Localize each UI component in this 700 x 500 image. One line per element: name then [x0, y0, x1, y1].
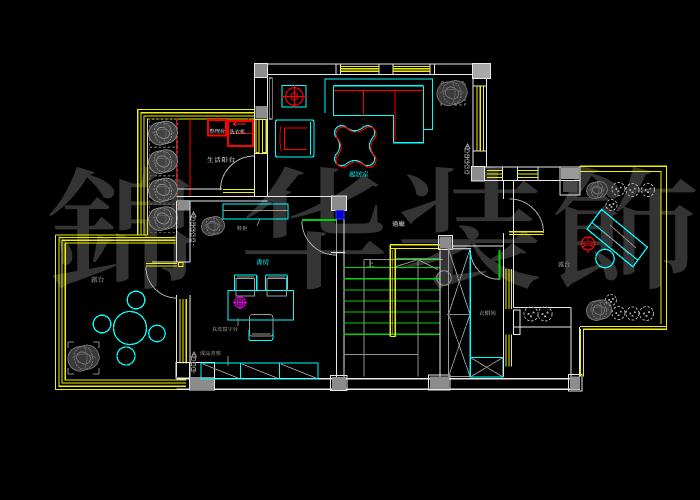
- svg-text:飾: 飾: [550, 127, 699, 316]
- svg-text:生活阳台: 生活阳台: [207, 155, 236, 164]
- svg-text:整理台: 整理台: [210, 128, 226, 135]
- svg-text:洗衣机: 洗衣机: [230, 129, 246, 136]
- svg-text:露台: 露台: [558, 260, 570, 269]
- svg-text:鞋柜: 鞋柜: [237, 225, 248, 232]
- svg-text:起居室: 起居室: [349, 169, 369, 179]
- svg-text:成品書架: 成品書架: [200, 350, 221, 357]
- svg-text:露台: 露台: [91, 274, 105, 284]
- svg-text:書房: 書房: [256, 257, 270, 267]
- svg-text:過廳: 過廳: [392, 219, 405, 228]
- svg-text:上: 上: [367, 259, 375, 270]
- svg-text:衣帽间: 衣帽间: [479, 309, 496, 317]
- svg-text:真皮寫字台: 真皮寫字台: [212, 326, 238, 333]
